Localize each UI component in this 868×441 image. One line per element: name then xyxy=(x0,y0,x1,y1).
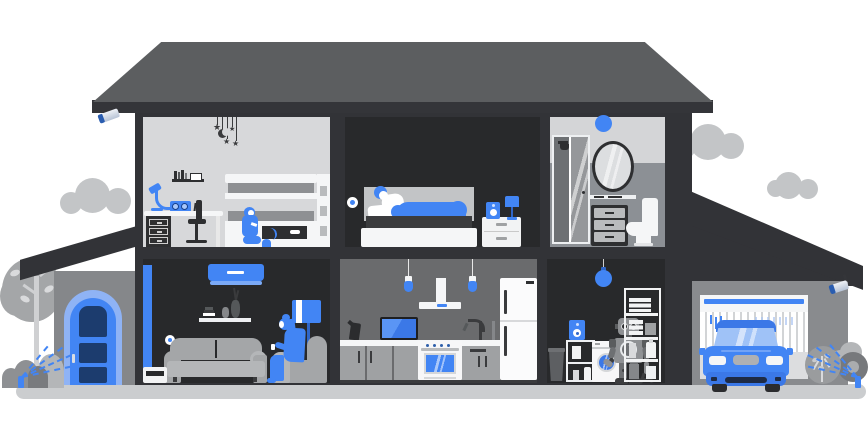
lamp-stem xyxy=(511,207,513,217)
fridge-handle xyxy=(504,326,507,356)
office-chair xyxy=(186,200,207,247)
detergent-box xyxy=(572,346,581,359)
faucet xyxy=(464,318,496,342)
robot-ear xyxy=(615,324,618,329)
oval-mirror xyxy=(592,141,634,192)
shower-door-handle xyxy=(582,191,585,194)
detergent-bottle xyxy=(646,342,656,358)
drawer xyxy=(149,228,168,235)
smart-ceiling-light xyxy=(595,115,612,132)
smart-pendant-light xyxy=(595,270,612,287)
bed-rail xyxy=(225,193,317,199)
cloud-puff xyxy=(767,180,784,197)
sofa-leg xyxy=(253,377,257,382)
book xyxy=(178,172,180,179)
pendant-light xyxy=(403,259,413,292)
drawer-handle xyxy=(470,349,486,352)
pillow xyxy=(290,230,300,234)
chair-pole xyxy=(195,224,198,240)
bottle xyxy=(584,367,591,380)
phone xyxy=(271,344,275,350)
drawer-line xyxy=(484,231,519,232)
toilet-bowl xyxy=(626,222,658,236)
ladder-slot xyxy=(320,186,327,196)
bed-mattress xyxy=(366,216,472,228)
dresser xyxy=(591,205,628,246)
small-item xyxy=(646,366,656,379)
speaker-led xyxy=(576,323,579,326)
car-headlight xyxy=(709,356,726,365)
top-bunk-blanket xyxy=(228,183,314,193)
pendant-cord xyxy=(472,259,473,276)
front-door xyxy=(70,298,116,385)
drawer-handle xyxy=(157,240,162,242)
trash-can xyxy=(549,351,564,381)
tree-canopy xyxy=(0,276,34,316)
shelf-board xyxy=(626,313,658,316)
shower-head-icon xyxy=(560,144,569,150)
towel-stack xyxy=(629,298,651,312)
fridge xyxy=(500,278,537,380)
cloud-puff xyxy=(105,188,131,214)
drawer xyxy=(149,219,168,226)
fridge-seam xyxy=(500,320,537,322)
desk-leg xyxy=(216,216,220,247)
cosmetics xyxy=(594,196,604,199)
star-icon: ★ xyxy=(223,138,230,146)
cabinet-seam xyxy=(392,346,394,380)
sofa-leg xyxy=(173,377,177,382)
speaker-led xyxy=(492,204,495,207)
bottle-cap xyxy=(649,339,653,343)
trash-lid xyxy=(548,348,565,352)
drawer xyxy=(594,232,625,242)
ac-vent-flap xyxy=(210,281,262,285)
book xyxy=(181,170,184,179)
speaker-woofer xyxy=(573,329,581,337)
washer-button xyxy=(595,343,600,345)
storage-box xyxy=(645,323,656,335)
car xyxy=(703,320,789,392)
chair-base xyxy=(186,240,207,243)
toilet-base xyxy=(634,243,653,246)
smart-home-illustration: ★ ★ ★ ★ xyxy=(0,0,868,441)
cabinet-seam xyxy=(365,346,367,380)
ladder-slot xyxy=(320,206,327,216)
ladder-slot xyxy=(320,226,327,236)
stove xyxy=(418,341,462,380)
drawer-handle xyxy=(157,231,162,233)
cabinet-handle xyxy=(358,351,360,363)
shower-cabin xyxy=(552,135,590,244)
faucet-column xyxy=(479,321,482,342)
speaker-woofer xyxy=(490,209,497,216)
cat xyxy=(262,228,276,247)
cloud-left xyxy=(60,177,132,208)
photo-frame xyxy=(190,173,202,181)
door-panel xyxy=(79,306,107,337)
cloud-puff xyxy=(60,192,82,214)
cabinet-handle xyxy=(485,356,487,367)
air-conditioner xyxy=(208,264,264,285)
book xyxy=(185,173,187,179)
drawer-handle xyxy=(496,223,507,226)
smart-speaker xyxy=(569,320,585,340)
oven-drawer-line xyxy=(424,377,456,379)
shower-glass xyxy=(571,137,588,242)
shelving-unit xyxy=(624,288,661,382)
cloud-puff xyxy=(718,133,744,159)
chair-back xyxy=(196,200,202,221)
cabinet-handle xyxy=(478,356,480,367)
bed-base xyxy=(361,228,477,247)
living-room xyxy=(143,259,330,383)
drawer-handle xyxy=(496,237,507,240)
car-foglight xyxy=(775,377,781,381)
garage-door-stripe xyxy=(704,299,804,304)
bed-ladder xyxy=(317,174,330,247)
oven-window xyxy=(424,353,456,374)
fridge-handle xyxy=(504,290,507,314)
stove-knob xyxy=(440,344,443,347)
child-legs xyxy=(243,236,261,244)
woman-face xyxy=(279,321,284,328)
towel-stack xyxy=(629,320,643,335)
fridge-ice-dispenser xyxy=(526,281,534,284)
cosmetics xyxy=(608,196,622,199)
utility-cart xyxy=(566,340,595,382)
curtain xyxy=(143,265,152,371)
speaker-cone xyxy=(172,203,179,210)
range-hood xyxy=(419,302,461,309)
hood-light xyxy=(437,304,447,307)
smart-wall-device xyxy=(347,197,358,208)
device-led xyxy=(350,200,355,205)
car-hood-line xyxy=(721,350,771,352)
door-panel xyxy=(79,343,107,363)
drawer xyxy=(149,237,168,244)
shelf-board xyxy=(626,337,658,340)
star-icon: ★ xyxy=(229,126,235,133)
table-lamp xyxy=(504,196,520,220)
drawer-handle xyxy=(605,236,614,238)
car-wheel xyxy=(765,384,780,392)
book-stack xyxy=(203,313,215,316)
bathroom xyxy=(550,117,665,247)
mobile-string xyxy=(236,117,237,141)
side-table-slot xyxy=(146,371,164,376)
drawer-handle xyxy=(605,224,614,226)
book-stack xyxy=(204,310,214,313)
book-stack xyxy=(205,307,213,310)
faucet-arc xyxy=(468,319,485,332)
oven-handle xyxy=(421,348,459,351)
tv-screen xyxy=(382,319,416,338)
stove-knob xyxy=(433,344,436,347)
car-headlight xyxy=(766,356,783,365)
roof xyxy=(93,42,713,102)
drawer xyxy=(594,208,625,218)
small-item xyxy=(573,370,579,380)
cabinets-left xyxy=(340,346,418,380)
toe-kick xyxy=(340,380,537,383)
soap-pump xyxy=(492,321,495,341)
toilet xyxy=(624,198,660,246)
shelf-board xyxy=(626,359,658,362)
wall-shelf xyxy=(199,318,251,322)
nightstand xyxy=(482,217,521,247)
book xyxy=(174,171,177,179)
laundry-room xyxy=(547,259,665,383)
drawer-handle xyxy=(157,222,162,224)
lamp-shade xyxy=(505,196,519,207)
bed-rail xyxy=(225,174,317,183)
cabinet-handle xyxy=(370,351,372,363)
woman-foot xyxy=(267,378,276,383)
stove-knob xyxy=(426,344,429,347)
star-icon: ★ xyxy=(232,140,239,148)
cat-body xyxy=(262,239,271,247)
kids-room: ★ ★ ★ ★ xyxy=(143,117,330,247)
drawer xyxy=(594,220,625,230)
cloud-puff xyxy=(798,179,818,199)
range-hood-chimney xyxy=(436,278,446,302)
door-panel xyxy=(79,367,107,383)
cart-shelf xyxy=(568,362,593,364)
car-grille xyxy=(733,355,759,365)
cabinets-right xyxy=(462,346,500,380)
bin xyxy=(629,364,639,379)
lamp-arm xyxy=(155,190,170,210)
vase xyxy=(231,300,240,318)
sofa-cushion-split xyxy=(215,340,217,358)
master-bedroom xyxy=(345,117,540,247)
side-table xyxy=(143,367,167,383)
woofer-dot xyxy=(576,332,579,335)
small-item xyxy=(629,343,636,358)
kitchen xyxy=(340,259,537,383)
pendant-light xyxy=(467,259,477,292)
car-bumper-slot xyxy=(725,377,767,383)
pendant-bulb xyxy=(404,281,413,292)
sprinkler-head xyxy=(18,376,24,388)
car-foglight xyxy=(711,377,717,381)
sofa xyxy=(164,338,268,383)
drawer-handle xyxy=(605,212,614,214)
pendant-bulb xyxy=(468,281,477,292)
stove-knob xyxy=(447,344,450,347)
cloud-right-small xyxy=(767,172,820,194)
smart-speaker xyxy=(486,202,500,219)
desk-drawers xyxy=(146,216,171,247)
pendant-cord xyxy=(408,259,409,276)
car-wheel xyxy=(712,384,727,392)
vase-small xyxy=(222,307,229,318)
ac-display xyxy=(227,271,244,274)
pendant-cord xyxy=(603,259,604,267)
door-handle xyxy=(72,354,75,363)
lamp-base xyxy=(507,217,517,220)
woman-reading xyxy=(267,312,307,383)
sofa-seat xyxy=(167,361,265,377)
child-figure xyxy=(239,205,264,247)
